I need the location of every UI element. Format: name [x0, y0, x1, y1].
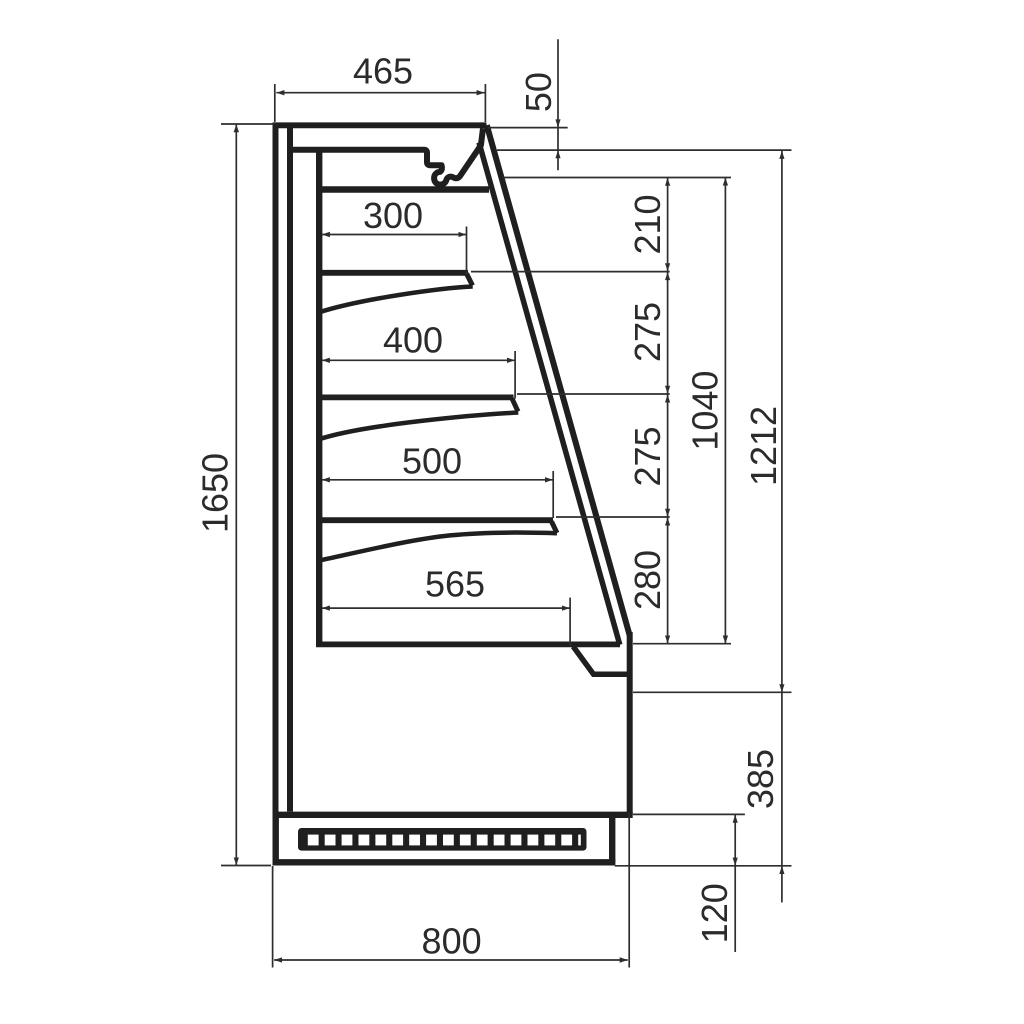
- svg-text:1212: 1212: [743, 406, 784, 486]
- svg-text:500: 500: [402, 441, 462, 482]
- svg-text:50: 50: [518, 72, 559, 112]
- svg-text:120: 120: [694, 883, 735, 943]
- svg-text:1650: 1650: [195, 453, 236, 533]
- svg-text:565: 565: [425, 564, 485, 605]
- svg-text:275: 275: [627, 426, 668, 486]
- svg-text:800: 800: [422, 921, 482, 962]
- svg-text:400: 400: [383, 320, 443, 361]
- svg-text:300: 300: [363, 195, 423, 236]
- svg-text:275: 275: [627, 302, 668, 362]
- svg-text:465: 465: [353, 51, 413, 92]
- svg-text:1040: 1040: [684, 371, 725, 451]
- svg-text:210: 210: [627, 194, 668, 254]
- svg-text:280: 280: [627, 550, 668, 610]
- svg-text:385: 385: [740, 749, 781, 809]
